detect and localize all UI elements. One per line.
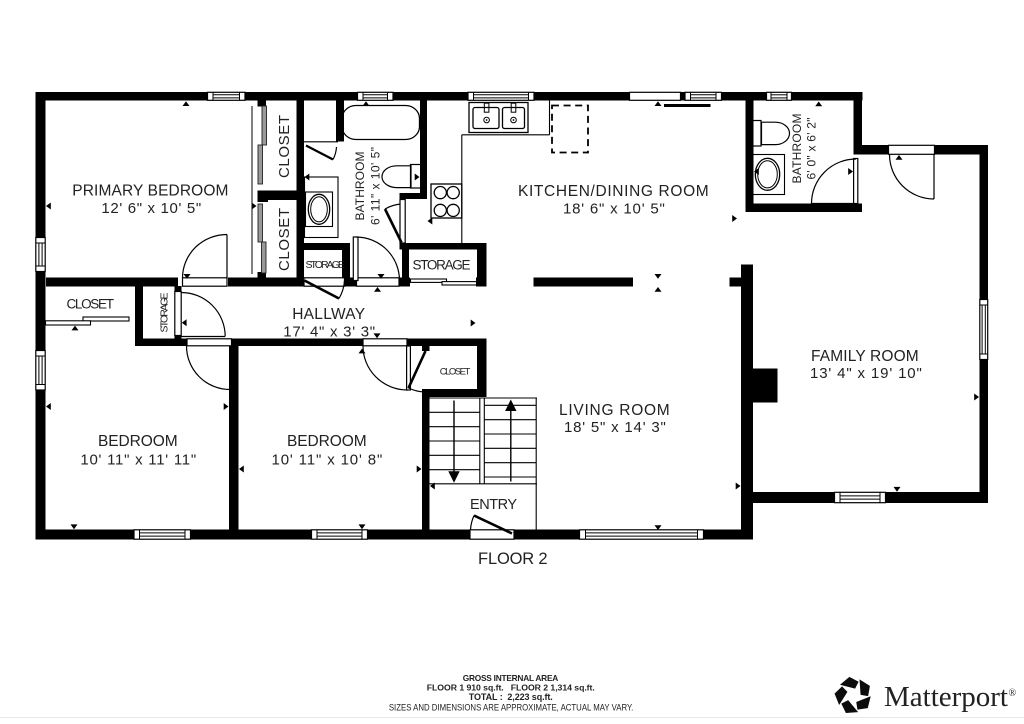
svg-text:10' 11" x 11' 11": 10' 11" x 11' 11"	[80, 451, 196, 468]
svg-text:KITCHEN/DINING ROOM: KITCHEN/DINING ROOM	[518, 183, 709, 200]
svg-text:PRIMARY BEDROOM: PRIMARY BEDROOM	[72, 183, 229, 200]
svg-text:CLOSET: CLOSET	[440, 367, 471, 378]
svg-text:CLOSET: CLOSET	[276, 208, 293, 271]
svg-text:17' 4" x 3' 3": 17' 4" x 3' 3"	[283, 323, 375, 340]
svg-text:6' 11" x 10' 5": 6' 11" x 10' 5"	[369, 147, 383, 225]
svg-text:BATHROOM: BATHROOM	[353, 152, 367, 221]
svg-text:BEDROOM: BEDROOM	[98, 433, 178, 450]
svg-text:6' 0" x 6' 2": 6' 0" x 6' 2"	[805, 118, 819, 180]
svg-text:Matterport: Matterport	[884, 682, 1008, 713]
svg-text:ENTRY: ENTRY	[470, 497, 517, 513]
svg-text:18' 5" x 14' 3": 18' 5" x 14' 3"	[564, 419, 666, 436]
svg-text:CLOSET: CLOSET	[276, 115, 293, 178]
svg-text:BEDROOM: BEDROOM	[287, 433, 367, 450]
svg-text:BATHROOM: BATHROOM	[790, 114, 804, 184]
svg-text:FLOOR 2: FLOOR 2	[478, 550, 548, 568]
svg-text:STORAGE: STORAGE	[413, 258, 471, 273]
svg-text:FLOOR 1 910 sq.ft. FLOOR 2 1: FLOOR 1 910 sq.ft. FLOOR 2 1,314 sq.ft.	[427, 683, 595, 693]
svg-text:SIZES AND DIMENSIONS ARE APPRO: SIZES AND DIMENSIONS ARE APPROXIMATE, AC…	[389, 702, 634, 712]
svg-text:LIVING ROOM: LIVING ROOM	[559, 402, 670, 419]
svg-text:GROSS INTERNAL AREA: GROSS INTERNAL AREA	[463, 673, 559, 683]
svg-text:HALLWAY: HALLWAY	[292, 306, 365, 323]
svg-text:STORAGE: STORAGE	[305, 259, 345, 271]
svg-text:FAMILY ROOM: FAMILY ROOM	[811, 348, 919, 365]
svg-text:12' 6" x 10' 5": 12' 6" x 10' 5"	[101, 200, 201, 217]
svg-text:®: ®	[1009, 688, 1017, 699]
svg-text:18' 6" x 10' 5": 18' 6" x 10' 5"	[563, 201, 665, 218]
svg-text:CLOSET: CLOSET	[66, 297, 114, 312]
svg-text:STORAGE: STORAGE	[159, 293, 171, 333]
svg-text:10' 11" x 10' 8": 10' 11" x 10' 8"	[272, 451, 383, 468]
svg-text:TOTAL : 2,223 sq.ft.: TOTAL : 2,223 sq.ft.	[469, 692, 553, 702]
svg-text:13' 4" x 19' 10": 13' 4" x 19' 10"	[810, 365, 922, 382]
